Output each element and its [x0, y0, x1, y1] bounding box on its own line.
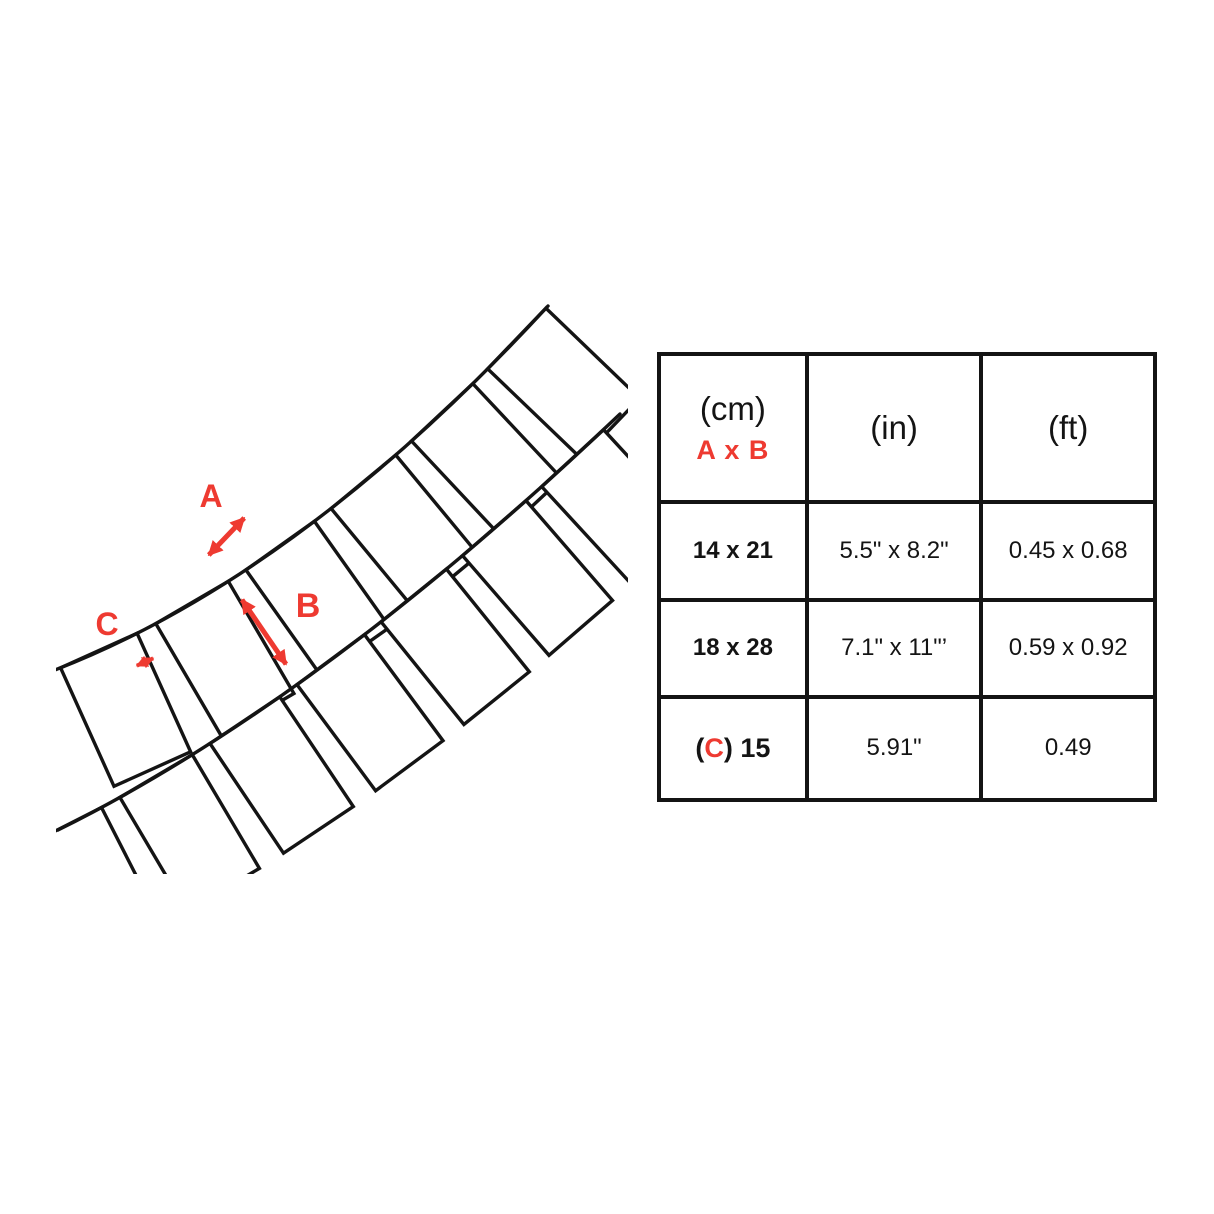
cell-size1-ft: 0.45 x 0.68	[983, 504, 1153, 602]
header-cell-in: (in)	[809, 356, 984, 504]
pennant-flag	[61, 633, 191, 786]
banner-artwork	[27, 306, 693, 963]
dimension-arrow-a	[209, 518, 244, 555]
paren-open: (	[695, 733, 704, 764]
cell-spacing-in: 5.91"	[809, 699, 984, 798]
cell-size2-cm: 18 x 28	[661, 602, 809, 699]
infographic-canvas: A B C (cm) A x B (in) (ft) 14 x 21 5.5" …	[0, 0, 1214, 1214]
cell-spacing-ft: 0.49	[983, 699, 1153, 798]
header-cell-cm: (cm) A x B	[661, 356, 809, 504]
paren-close-value: ) 15	[724, 733, 771, 764]
size-table: (cm) A x B (in) (ft) 14 x 21 5.5" x 8.2"…	[657, 352, 1157, 802]
c-letter: C	[704, 733, 724, 764]
dimension-label-a: A	[199, 478, 222, 514]
header-cell-ft: (ft)	[983, 356, 1153, 504]
cm-unit-label: (cm)	[700, 390, 766, 428]
cell-size1-in: 5.5" x 8.2"	[809, 504, 984, 602]
dimension-label-c: C	[95, 606, 118, 642]
cell-size2-in: 7.1" x 11"’	[809, 602, 984, 699]
cell-size2-ft: 0.59 x 0.92	[983, 602, 1153, 699]
cell-size1-cm: 14 x 21	[661, 504, 809, 602]
axb-label: A x B	[696, 435, 769, 466]
cell-spacing-cm: (C) 15	[661, 699, 809, 798]
dimension-label-b: B	[296, 587, 321, 625]
